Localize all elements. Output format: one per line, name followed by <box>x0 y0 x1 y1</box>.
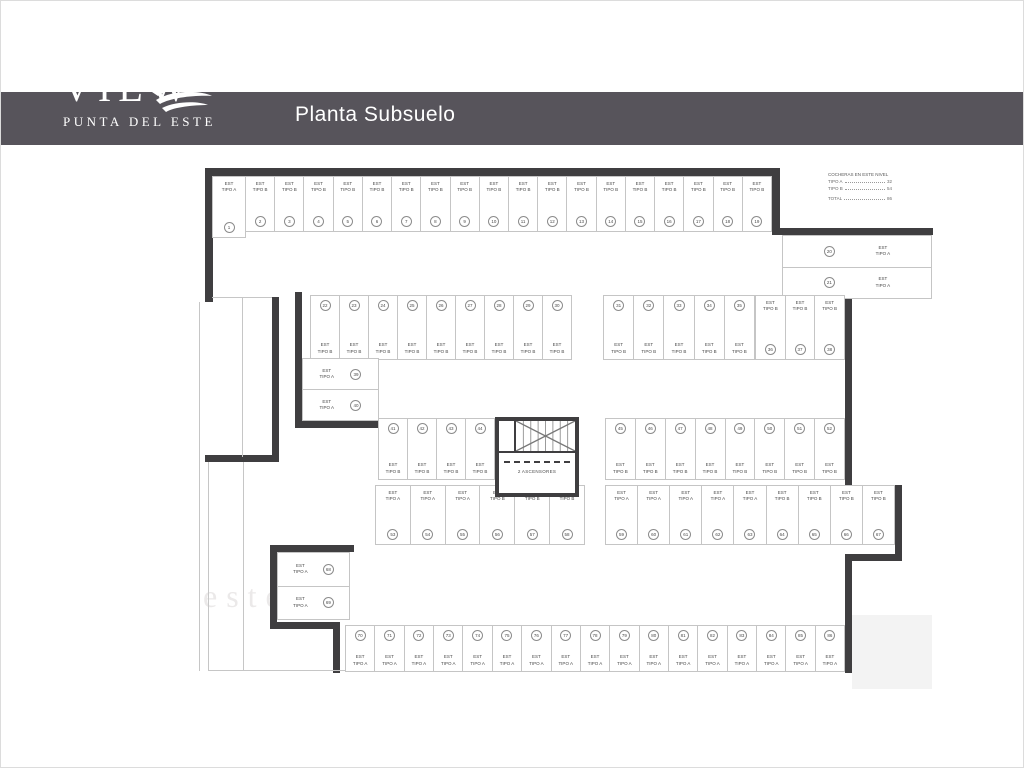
wall-3940-bottom <box>295 421 382 428</box>
vestibule <box>499 421 516 451</box>
stall-label: EST TIPO B <box>399 181 414 194</box>
stall-label: EST TIPO B <box>492 342 507 355</box>
stall-label: EST TIPO B <box>434 342 449 355</box>
wall-top-right-box <box>772 228 933 235</box>
stall-label: EST TIPO A <box>793 654 808 667</box>
stall-26: 26EST TIPO B <box>426 295 456 360</box>
stall-number: 79 <box>619 630 630 641</box>
stall-67: EST TIPO B67 <box>862 485 895 545</box>
stall-label: EST TIPO A <box>614 490 629 503</box>
elevator-label: 2 ASCENSORES <box>499 469 575 474</box>
stall-number: 4 <box>313 216 324 227</box>
stall-label: EST TIPO A <box>735 654 750 667</box>
stall-number: 50 <box>764 423 775 434</box>
stall-16: EST TIPO B16 <box>654 176 684 232</box>
legend-row-tipo-a: TIPO A 32 <box>828 179 892 184</box>
stall-number: 62 <box>712 529 723 540</box>
stall-79: 79EST TIPO A <box>609 625 639 672</box>
stall-label: EST TIPO B <box>253 181 268 194</box>
wall-top <box>205 168 780 176</box>
stall-label: EST TIPO A <box>500 654 515 667</box>
stall-number: 30 <box>552 300 563 311</box>
stall-65: EST TIPO B65 <box>798 485 831 545</box>
stall-number: 20 <box>824 246 835 257</box>
stall-label: EST TIPO A <box>293 563 308 576</box>
stall-label: EST TIPO A <box>743 490 758 503</box>
stall-label: EST TIPO B <box>763 300 778 313</box>
stall-label: EST TIPO B <box>733 462 748 475</box>
stall-number: 64 <box>777 529 788 540</box>
stall-49: 49EST TIPO B <box>725 418 756 480</box>
stall-83: 83EST TIPO A <box>727 625 757 672</box>
stall-number: 22 <box>320 300 331 311</box>
stall-number: 33 <box>674 300 685 311</box>
wall-right-jog2 <box>845 554 902 561</box>
stall-4: EST TIPO B4 <box>303 176 333 232</box>
stall-35: 35EST TIPO B <box>724 295 755 360</box>
stall-number: 65 <box>809 529 820 540</box>
stall-label: EST TIPO A <box>558 654 573 667</box>
stall-number: 72 <box>413 630 424 641</box>
stall-number: 43 <box>446 423 457 434</box>
stall-75: 75EST TIPO A <box>492 625 522 672</box>
stall-71: 71EST TIPO A <box>374 625 404 672</box>
stall-label: EST TIPO B <box>473 462 488 475</box>
stall-label: EST TIPO A <box>412 654 427 667</box>
stall-number: 29 <box>523 300 534 311</box>
stall-group-top-first: EST TIPO A1 <box>212 176 246 238</box>
wall-right-toprow <box>772 168 780 235</box>
stall-37: EST TIPO B37 <box>785 295 816 360</box>
stall-label: EST TIPO B <box>762 462 777 475</box>
stall-label: EST TIPO B <box>444 462 459 475</box>
stall-label: EST TIPO B <box>775 490 790 503</box>
stall-number: 57 <box>527 529 538 540</box>
stall-number: 66 <box>841 529 852 540</box>
stall-27: 27EST TIPO B <box>455 295 485 360</box>
stall-22: 22EST TIPO B <box>310 295 340 360</box>
stall-label: EST TIPO A <box>588 654 603 667</box>
stall-70: 70EST TIPO A <box>345 625 375 672</box>
stall-number: 1 <box>224 222 235 233</box>
stall-label: EST TIPO B <box>463 342 478 355</box>
stall-8: EST TIPO B8 <box>420 176 450 232</box>
stall-69: EST TIPO A69 <box>277 586 350 621</box>
stall-number: 60 <box>648 529 659 540</box>
stall-10: EST TIPO B10 <box>479 176 509 232</box>
stall-number: 26 <box>436 300 447 311</box>
stall-number: 36 <box>765 344 776 355</box>
stall-group-row2-right-b: EST TIPO B36EST TIPO B37EST TIPO B38 <box>755 295 845 360</box>
stall-number: 45 <box>615 423 626 434</box>
stall-label: EST TIPO B <box>749 181 764 194</box>
stair-room <box>499 421 575 453</box>
stall-label: EST TIPO A <box>455 490 470 503</box>
stall-number: 61 <box>680 529 691 540</box>
stall-48: 48EST TIPO B <box>695 418 726 480</box>
stall-number: 39 <box>350 369 361 380</box>
stall-number: 34 <box>704 300 715 311</box>
legend-label: TOTAL <box>828 196 842 201</box>
stall-group-low-row-right: EST TIPO A59EST TIPO A60EST TIPO A61EST … <box>605 485 895 545</box>
stall-label: EST TIPO A <box>222 181 237 194</box>
stall-81: 81EST TIPO A <box>668 625 698 672</box>
stall-label: EST TIPO A <box>646 490 661 503</box>
ghost-area <box>852 615 932 689</box>
stall-label: EST TIPO B <box>347 342 362 355</box>
wall-ramp-right <box>272 297 279 462</box>
stall-label: EST TIPO A <box>823 654 838 667</box>
stall-label: EST TIPO B <box>792 462 807 475</box>
stall-label: EST TIPO B <box>486 181 501 194</box>
legend-value: 86 <box>887 196 892 201</box>
stall-86: 86EST TIPO A <box>815 625 845 672</box>
stall-85: 85EST TIPO A <box>785 625 815 672</box>
stall-30: 30EST TIPO B <box>542 295 572 360</box>
stall-label: EST TIPO A <box>676 654 691 667</box>
stall-number: 49 <box>734 423 745 434</box>
stall-label: EST TIPO A <box>617 654 632 667</box>
stall-label: EST TIPO B <box>282 181 297 194</box>
stall-label: EST TIPO B <box>643 462 658 475</box>
stall-label: EST TIPO B <box>732 342 747 355</box>
stall-group-row2-left: 22EST TIPO B23EST TIPO B24EST TIPO B25ES… <box>310 295 572 360</box>
stall-number: 83 <box>736 630 747 641</box>
stall-47: 47EST TIPO B <box>665 418 696 480</box>
drive-lane-line-left <box>208 462 209 670</box>
stall-label: EST TIPO A <box>470 654 485 667</box>
stall-77: 77EST TIPO A <box>551 625 581 672</box>
stall-number: 23 <box>349 300 360 311</box>
stall-number: 3 <box>284 216 295 227</box>
page-title: Planta Subsuelo <box>295 103 455 127</box>
stall-label: EST TIPO B <box>311 181 326 194</box>
stall-number: 42 <box>417 423 428 434</box>
legend-value: 54 <box>887 186 892 191</box>
stall-32: 32EST TIPO B <box>633 295 664 360</box>
stall-number: 77 <box>560 630 571 641</box>
stall-number: 85 <box>795 630 806 641</box>
stall-number: 51 <box>794 423 805 434</box>
stall-76: 76EST TIPO A <box>521 625 551 672</box>
wall-row2-left <box>295 292 302 428</box>
stall-number: 28 <box>494 300 505 311</box>
stall-group-bottom-left-pair: EST TIPO A68EST TIPO A69 <box>277 552 350 620</box>
stall-label: EST TIPO B <box>807 490 822 503</box>
stall-42: 42EST TIPO B <box>407 418 437 480</box>
stall-number: 82 <box>707 630 718 641</box>
stall-43: 43EST TIPO B <box>436 418 466 480</box>
stall-number: 14 <box>605 216 616 227</box>
stall-number: 76 <box>531 630 542 641</box>
stall-3: EST TIPO B3 <box>274 176 304 232</box>
stall-number: 71 <box>384 630 395 641</box>
stall-number: 13 <box>576 216 587 227</box>
stall-number: 18 <box>722 216 733 227</box>
stall-20: 20EST TIPO A <box>782 235 932 268</box>
stall-number: 86 <box>824 630 835 641</box>
stall-number: 15 <box>634 216 645 227</box>
stall-number: 78 <box>590 630 601 641</box>
stall-number: 63 <box>744 529 755 540</box>
stall-label: EST TIPO B <box>340 181 355 194</box>
stall-number: 19 <box>751 216 762 227</box>
stall-17: EST TIPO B17 <box>683 176 713 232</box>
stall-60: EST TIPO A60 <box>637 485 670 545</box>
stall-number: 54 <box>422 529 433 540</box>
legend-value: 32 <box>887 179 892 184</box>
stall-54: EST TIPO A54 <box>410 485 446 545</box>
stall-group-right-pair: 20EST TIPO A21EST TIPO A <box>782 235 932 299</box>
stall-53: EST TIPO A53 <box>375 485 411 545</box>
stall-group-mid-row-left: 41EST TIPO B42EST TIPO B43EST TIPO B44ES… <box>378 418 495 480</box>
stall-label: EST TIPO B <box>415 462 430 475</box>
stall-label: EST TIPO B <box>550 342 565 355</box>
stall-number: 40 <box>350 400 361 411</box>
stall-25: 25EST TIPO B <box>397 295 427 360</box>
stall-44: 44EST TIPO B <box>465 418 495 480</box>
stall-31: 31EST TIPO B <box>603 295 634 360</box>
stall-61: EST TIPO A61 <box>669 485 702 545</box>
stall-label: EST TIPO B <box>793 300 808 313</box>
legend-row-total: TOTAL 86 <box>828 196 892 201</box>
stall-74: 74EST TIPO A <box>462 625 492 672</box>
stall-label: EST TIPO A <box>353 654 368 667</box>
stall-label: EST TIPO B <box>720 181 735 194</box>
stall-2: EST TIPO B2 <box>245 176 275 232</box>
stall-group-row2-right-a: 31EST TIPO B32EST TIPO B33EST TIPO B34ES… <box>603 295 755 360</box>
stall-label: EST TIPO B <box>611 342 626 355</box>
stall-number: 67 <box>873 529 884 540</box>
stall-group-mid-row-right: 45EST TIPO B46EST TIPO B47EST TIPO B48ES… <box>605 418 845 480</box>
stall-label: EST TIPO A <box>876 276 891 289</box>
stall-46: 46EST TIPO B <box>635 418 666 480</box>
stall-number: 68 <box>323 564 334 575</box>
stall-5: EST TIPO B5 <box>333 176 363 232</box>
stall-number: 44 <box>475 423 486 434</box>
stall-1: EST TIPO A1 <box>212 176 246 238</box>
stall-label: EST TIPO A <box>420 490 435 503</box>
stall-number: 31 <box>613 300 624 311</box>
dotted-leader <box>845 189 885 190</box>
stall-label: EST TIPO B <box>702 342 717 355</box>
stall-label: EST TIPO B <box>574 181 589 194</box>
stall-label: EST TIPO A <box>386 490 401 503</box>
stall-label: EST TIPO B <box>839 490 854 503</box>
dotted-leader <box>845 182 885 183</box>
stall-label: EST TIPO B <box>370 181 385 194</box>
stall-13: EST TIPO B13 <box>566 176 596 232</box>
brand-subtitle: PUNTA DEL ESTE <box>63 114 216 130</box>
stall-label: EST TIPO B <box>673 462 688 475</box>
stall-14: EST TIPO B14 <box>596 176 626 232</box>
stall-label: EST TIPO A <box>319 368 334 381</box>
stall-11: EST TIPO B11 <box>508 176 538 232</box>
stall-label: EST TIPO A <box>764 654 779 667</box>
stall-72: 72EST TIPO A <box>404 625 434 672</box>
stall-number: 56 <box>492 529 503 540</box>
stall-78: 78EST TIPO A <box>580 625 610 672</box>
stall-label: EST TIPO B <box>516 181 531 194</box>
stall-52: 52EST TIPO B <box>814 418 845 480</box>
stall-number: 17 <box>693 216 704 227</box>
stall-group-top-row: EST TIPO B2EST TIPO B3EST TIPO B4EST TIP… <box>245 176 772 232</box>
stall-number: 37 <box>795 344 806 355</box>
stall-label: EST TIPO B <box>662 181 677 194</box>
parking-legend: COCHERAS EN ESTE NIVEL TIPO A 32 TIPO B … <box>828 172 892 202</box>
stall-73: 73EST TIPO A <box>433 625 463 672</box>
stall-68: EST TIPO A68 <box>277 552 350 587</box>
stall-label: EST TIPO B <box>633 181 648 194</box>
stall-number: 6 <box>371 216 382 227</box>
stall-number: 5 <box>342 216 353 227</box>
stall-label: EST TIPO B <box>386 462 401 475</box>
stall-label: EST TIPO B <box>822 300 837 313</box>
stall-59: EST TIPO A59 <box>605 485 638 545</box>
stall-label: EST TIPO B <box>641 342 656 355</box>
stall-label: EST TIPO B <box>691 181 706 194</box>
stall-number: 11 <box>518 216 529 227</box>
legend-row-tipo-b: TIPO B 54 <box>828 186 892 191</box>
stall-18: EST TIPO B18 <box>713 176 743 232</box>
stall-label: EST TIPO B <box>405 342 420 355</box>
stall-62: EST TIPO A62 <box>701 485 734 545</box>
stall-group-bottom-row: 70EST TIPO A71EST TIPO A72EST TIPO A73ES… <box>345 625 845 672</box>
stall-9: EST TIPO B9 <box>450 176 480 232</box>
stall-label: EST TIPO A <box>293 596 308 609</box>
stall-50: 50EST TIPO B <box>754 418 785 480</box>
stall-label: EST TIPO A <box>319 399 334 412</box>
stall-number: 47 <box>675 423 686 434</box>
stall-label: EST TIPO B <box>318 342 333 355</box>
stall-33: 33EST TIPO B <box>663 295 694 360</box>
stall-number: 59 <box>616 529 627 540</box>
stall-number: 84 <box>766 630 777 641</box>
stall-29: 29EST TIPO B <box>513 295 543 360</box>
stall-64: EST TIPO B64 <box>766 485 799 545</box>
stall-label: EST TIPO B <box>428 181 443 194</box>
stall-label: EST TIPO A <box>679 490 694 503</box>
stall-82: 82EST TIPO A <box>697 625 727 672</box>
stall-label: EST TIPO B <box>871 490 886 503</box>
stall-label: EST TIPO B <box>703 462 718 475</box>
ramp-center-line <box>242 297 243 457</box>
stall-39: EST TIPO A39 <box>302 358 379 390</box>
stall-label: EST TIPO B <box>521 342 536 355</box>
stall-number: 7 <box>401 216 412 227</box>
legend-title: COCHERAS EN ESTE NIVEL <box>828 172 892 177</box>
stall-number: 10 <box>488 216 499 227</box>
stall-number: 81 <box>678 630 689 641</box>
stall-number: 75 <box>501 630 512 641</box>
legend-label: TIPO A <box>828 179 843 184</box>
stall-51: 51EST TIPO B <box>784 418 815 480</box>
wall-right-bottom <box>845 554 852 673</box>
stall-number: 35 <box>734 300 745 311</box>
stall-number: 8 <box>430 216 441 227</box>
stall-36: EST TIPO B36 <box>755 295 786 360</box>
stall-23: 23EST TIPO B <box>339 295 369 360</box>
stall-number: 38 <box>824 344 835 355</box>
wall-right-mid <box>845 292 852 492</box>
stall-label: EST TIPO A <box>529 654 544 667</box>
stall-number: 55 <box>457 529 468 540</box>
stall-45: 45EST TIPO B <box>605 418 636 480</box>
stall-number: 24 <box>378 300 389 311</box>
stall-number: 2 <box>255 216 266 227</box>
stall-84: 84EST TIPO A <box>756 625 786 672</box>
stall-38: EST TIPO B38 <box>814 295 845 360</box>
stall-label: EST TIPO A <box>705 654 720 667</box>
stall-number: 58 <box>562 529 573 540</box>
stall-63: EST TIPO A63 <box>733 485 766 545</box>
door-dashed-line <box>504 461 571 463</box>
stall-66: EST TIPO B66 <box>830 485 863 545</box>
wall-6869-top <box>270 545 354 552</box>
stall-number: 73 <box>443 630 454 641</box>
stall-41: 41EST TIPO B <box>378 418 408 480</box>
stall-group-mid-left-pair: EST TIPO A39EST TIPO A40 <box>302 358 379 421</box>
wall-6869-left <box>270 545 277 629</box>
stall-number: 41 <box>388 423 399 434</box>
stall-40: EST TIPO A40 <box>302 389 379 421</box>
stall-number: 80 <box>648 630 659 641</box>
stall-28: 28EST TIPO B <box>484 295 514 360</box>
stall-label: EST TIPO B <box>822 462 837 475</box>
stall-12: EST TIPO B12 <box>537 176 567 232</box>
stall-number: 70 <box>355 630 366 641</box>
stall-number: 74 <box>472 630 483 641</box>
wall-6869-bottom <box>270 622 340 629</box>
stall-label: EST TIPO B <box>545 181 560 194</box>
stall-number: 25 <box>407 300 418 311</box>
legend-label: TIPO B <box>828 186 843 191</box>
stall-7: EST TIPO B7 <box>391 176 421 232</box>
wall-bottomrow-left <box>333 622 340 673</box>
stall-number: 21 <box>824 277 835 288</box>
stall-label: EST TIPO A <box>441 654 456 667</box>
dotted-leader <box>844 199 885 200</box>
stall-label: EST TIPO A <box>711 490 726 503</box>
stall-label: EST TIPO A <box>382 654 397 667</box>
stall-19: EST TIPO B19 <box>742 176 772 232</box>
stall-number: 32 <box>643 300 654 311</box>
drive-lane-line-mid <box>243 462 244 670</box>
stall-6: EST TIPO B6 <box>362 176 392 232</box>
stall-34: 34EST TIPO B <box>694 295 725 360</box>
wall-right-lower <box>895 485 902 561</box>
stall-number: 27 <box>465 300 476 311</box>
stall-number: 53 <box>387 529 398 540</box>
stall-number: 9 <box>459 216 470 227</box>
outer-faint-line <box>199 302 200 671</box>
stall-80: 80EST TIPO A <box>639 625 669 672</box>
stall-55: EST TIPO A55 <box>445 485 481 545</box>
elevator-core: 2 ASCENSORES <box>495 417 579 497</box>
stall-label: EST TIPO B <box>376 342 391 355</box>
stall-24: 24EST TIPO B <box>368 295 398 360</box>
stall-label: EST TIPO B <box>603 181 618 194</box>
stall-15: EST TIPO B15 <box>625 176 655 232</box>
stall-label: EST TIPO A <box>876 245 891 258</box>
stall-number: 69 <box>323 597 334 608</box>
stall-number: 46 <box>645 423 656 434</box>
stall-number: 16 <box>664 216 675 227</box>
stall-number: 48 <box>705 423 716 434</box>
stall-number: 52 <box>824 423 835 434</box>
stall-label: EST TIPO B <box>672 342 687 355</box>
stall-label: EST TIPO B <box>613 462 628 475</box>
